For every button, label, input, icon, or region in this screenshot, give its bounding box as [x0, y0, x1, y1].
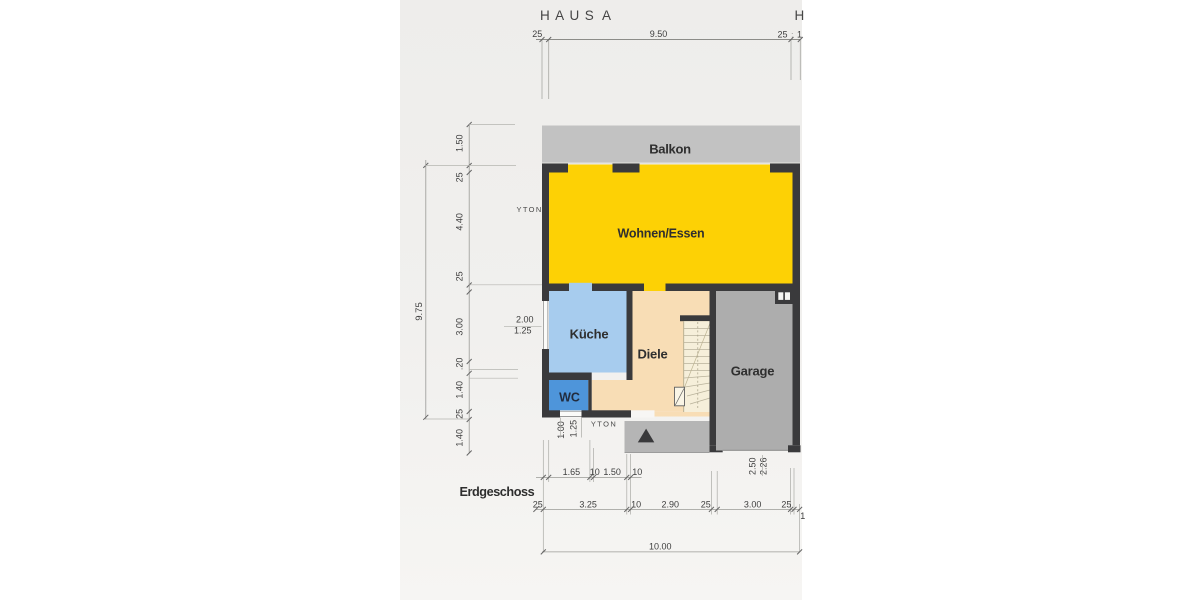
svg-text:25: 25 [532, 29, 542, 39]
svg-text:Wohnen/Essen: Wohnen/Essen [618, 227, 705, 241]
svg-text:1.40: 1.40 [455, 381, 465, 399]
svg-text::: : [791, 31, 793, 40]
svg-text:10: 10 [632, 467, 642, 477]
svg-text:WC: WC [559, 391, 580, 405]
svg-text:2.50: 2.50 [748, 457, 758, 475]
svg-text:H: H [795, 8, 805, 23]
svg-text:25: 25 [455, 271, 465, 281]
svg-text:HAUS: HAUS [540, 8, 599, 23]
svg-text:YTON: YTON [591, 420, 617, 429]
svg-text:1.25: 1.25 [568, 420, 578, 438]
svg-text:1.65: 1.65 [563, 467, 581, 477]
svg-text:Balkon: Balkon [649, 142, 691, 157]
svg-text:2.90: 2.90 [662, 499, 680, 509]
svg-text:1.50: 1.50 [455, 134, 465, 152]
svg-text:9.50: 9.50 [650, 29, 668, 39]
svg-text:10.00: 10.00 [649, 541, 672, 551]
svg-text:4.40: 4.40 [455, 213, 465, 231]
svg-text:2.00: 2.00 [516, 315, 534, 325]
svg-text:1.00: 1.00 [556, 421, 566, 439]
svg-text:Garage: Garage [731, 364, 775, 379]
svg-text:10: 10 [590, 467, 600, 477]
svg-text:1.40: 1.40 [455, 429, 465, 447]
svg-text:YTON: YTON [516, 205, 542, 214]
svg-text:3.00: 3.00 [455, 318, 465, 336]
svg-text:25: 25 [777, 30, 787, 40]
svg-text:Erdgeschoss: Erdgeschoss [460, 485, 535, 499]
svg-text:3.00: 3.00 [744, 499, 762, 509]
svg-text:A: A [602, 8, 611, 23]
svg-text:25: 25 [781, 499, 791, 509]
svg-text:1.50: 1.50 [603, 467, 621, 477]
svg-text:Küche: Küche [570, 327, 609, 342]
svg-text:Diele: Diele [637, 347, 667, 362]
svg-text:2.26: 2.26 [758, 457, 768, 475]
svg-text:25: 25 [701, 499, 711, 509]
svg-text:25: 25 [455, 172, 465, 182]
svg-text:1.25: 1.25 [514, 326, 532, 336]
svg-text:3.25: 3.25 [579, 499, 597, 509]
svg-text:9.75: 9.75 [414, 302, 425, 321]
svg-text:1: 1 [797, 30, 802, 40]
svg-text:1: 1 [800, 511, 805, 521]
svg-text:25: 25 [455, 409, 465, 419]
svg-text:.20: .20 [455, 358, 465, 371]
